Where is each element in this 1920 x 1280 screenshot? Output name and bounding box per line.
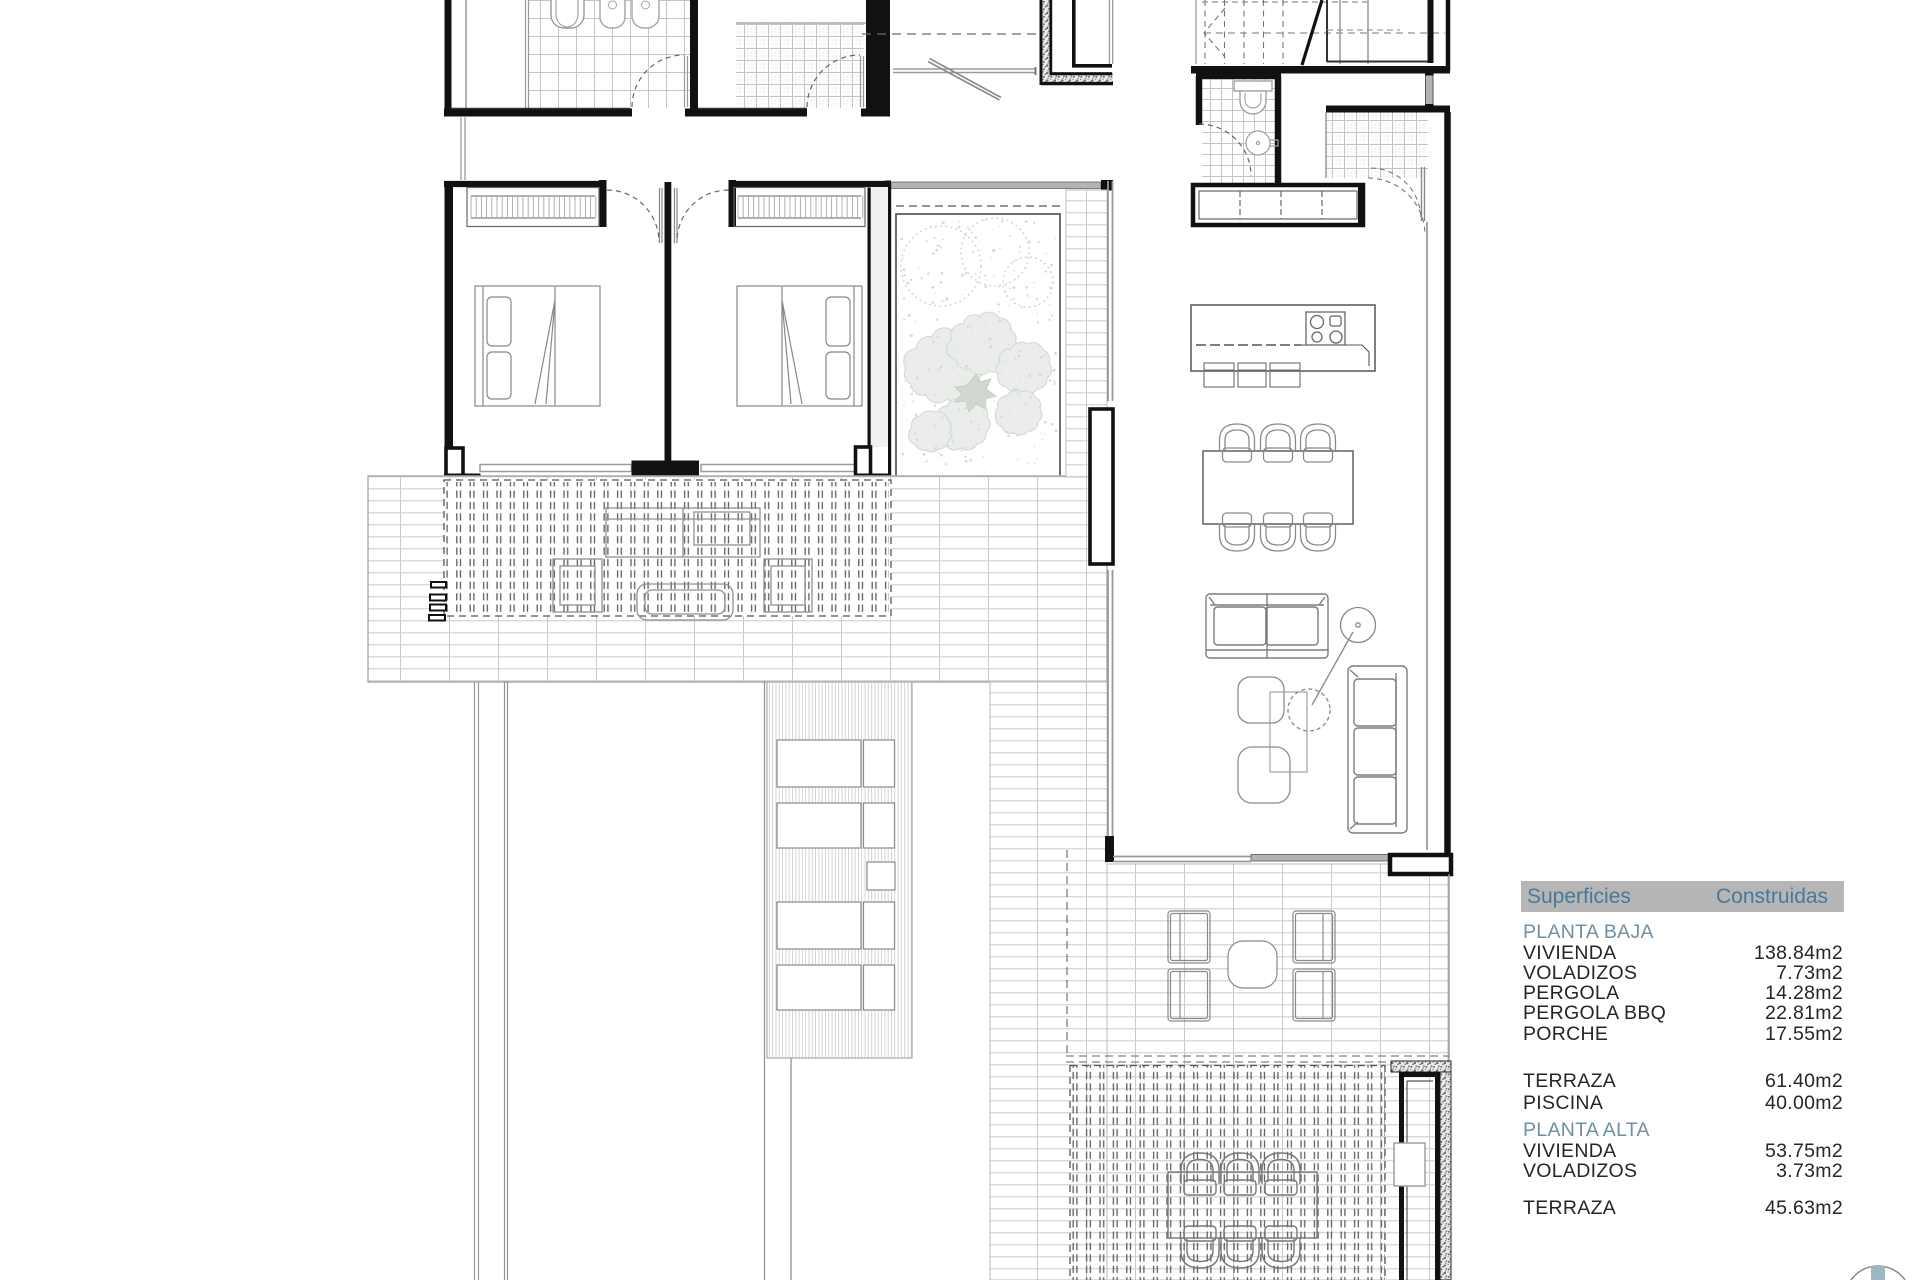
svg-text:Superficies: Superficies — [1527, 885, 1631, 908]
svg-text:VOLADIZOS: VOLADIZOS — [1523, 1160, 1637, 1182]
svg-text:PLANTA BAJA: PLANTA BAJA — [1523, 921, 1654, 943]
svg-text:VIVIENDA: VIVIENDA — [1523, 942, 1616, 964]
svg-text:45.63m2: 45.63m2 — [1765, 1197, 1843, 1219]
svg-text:3.73m2: 3.73m2 — [1776, 1160, 1843, 1182]
svg-text:22.81m2: 22.81m2 — [1765, 1002, 1843, 1024]
svg-text:PERGOLA: PERGOLA — [1523, 982, 1619, 1004]
svg-text:14.28m2: 14.28m2 — [1765, 982, 1843, 1004]
svg-text:Construidas: Construidas — [1716, 885, 1828, 908]
svg-text:138.84m2: 138.84m2 — [1754, 942, 1843, 964]
svg-text:PERGOLA BBQ: PERGOLA BBQ — [1523, 1002, 1666, 1024]
svg-text:7.73m2: 7.73m2 — [1776, 962, 1843, 984]
svg-text:VIVIENDA: VIVIENDA — [1523, 1140, 1616, 1162]
svg-text:TERRAZA: TERRAZA — [1523, 1197, 1616, 1219]
svg-text:17.55m2: 17.55m2 — [1765, 1023, 1843, 1045]
svg-text:TERRAZA: TERRAZA — [1523, 1070, 1616, 1092]
svg-text:61.40m2: 61.40m2 — [1765, 1070, 1843, 1092]
svg-text:40.00m2: 40.00m2 — [1765, 1092, 1843, 1114]
svg-text:PISCINA: PISCINA — [1523, 1092, 1603, 1114]
svg-text:PLANTA ALTA: PLANTA ALTA — [1523, 1119, 1650, 1141]
svg-text:PORCHE: PORCHE — [1523, 1023, 1608, 1045]
svg-text:53.75m2: 53.75m2 — [1765, 1140, 1843, 1162]
svg-text:VOLADIZOS: VOLADIZOS — [1523, 962, 1637, 984]
